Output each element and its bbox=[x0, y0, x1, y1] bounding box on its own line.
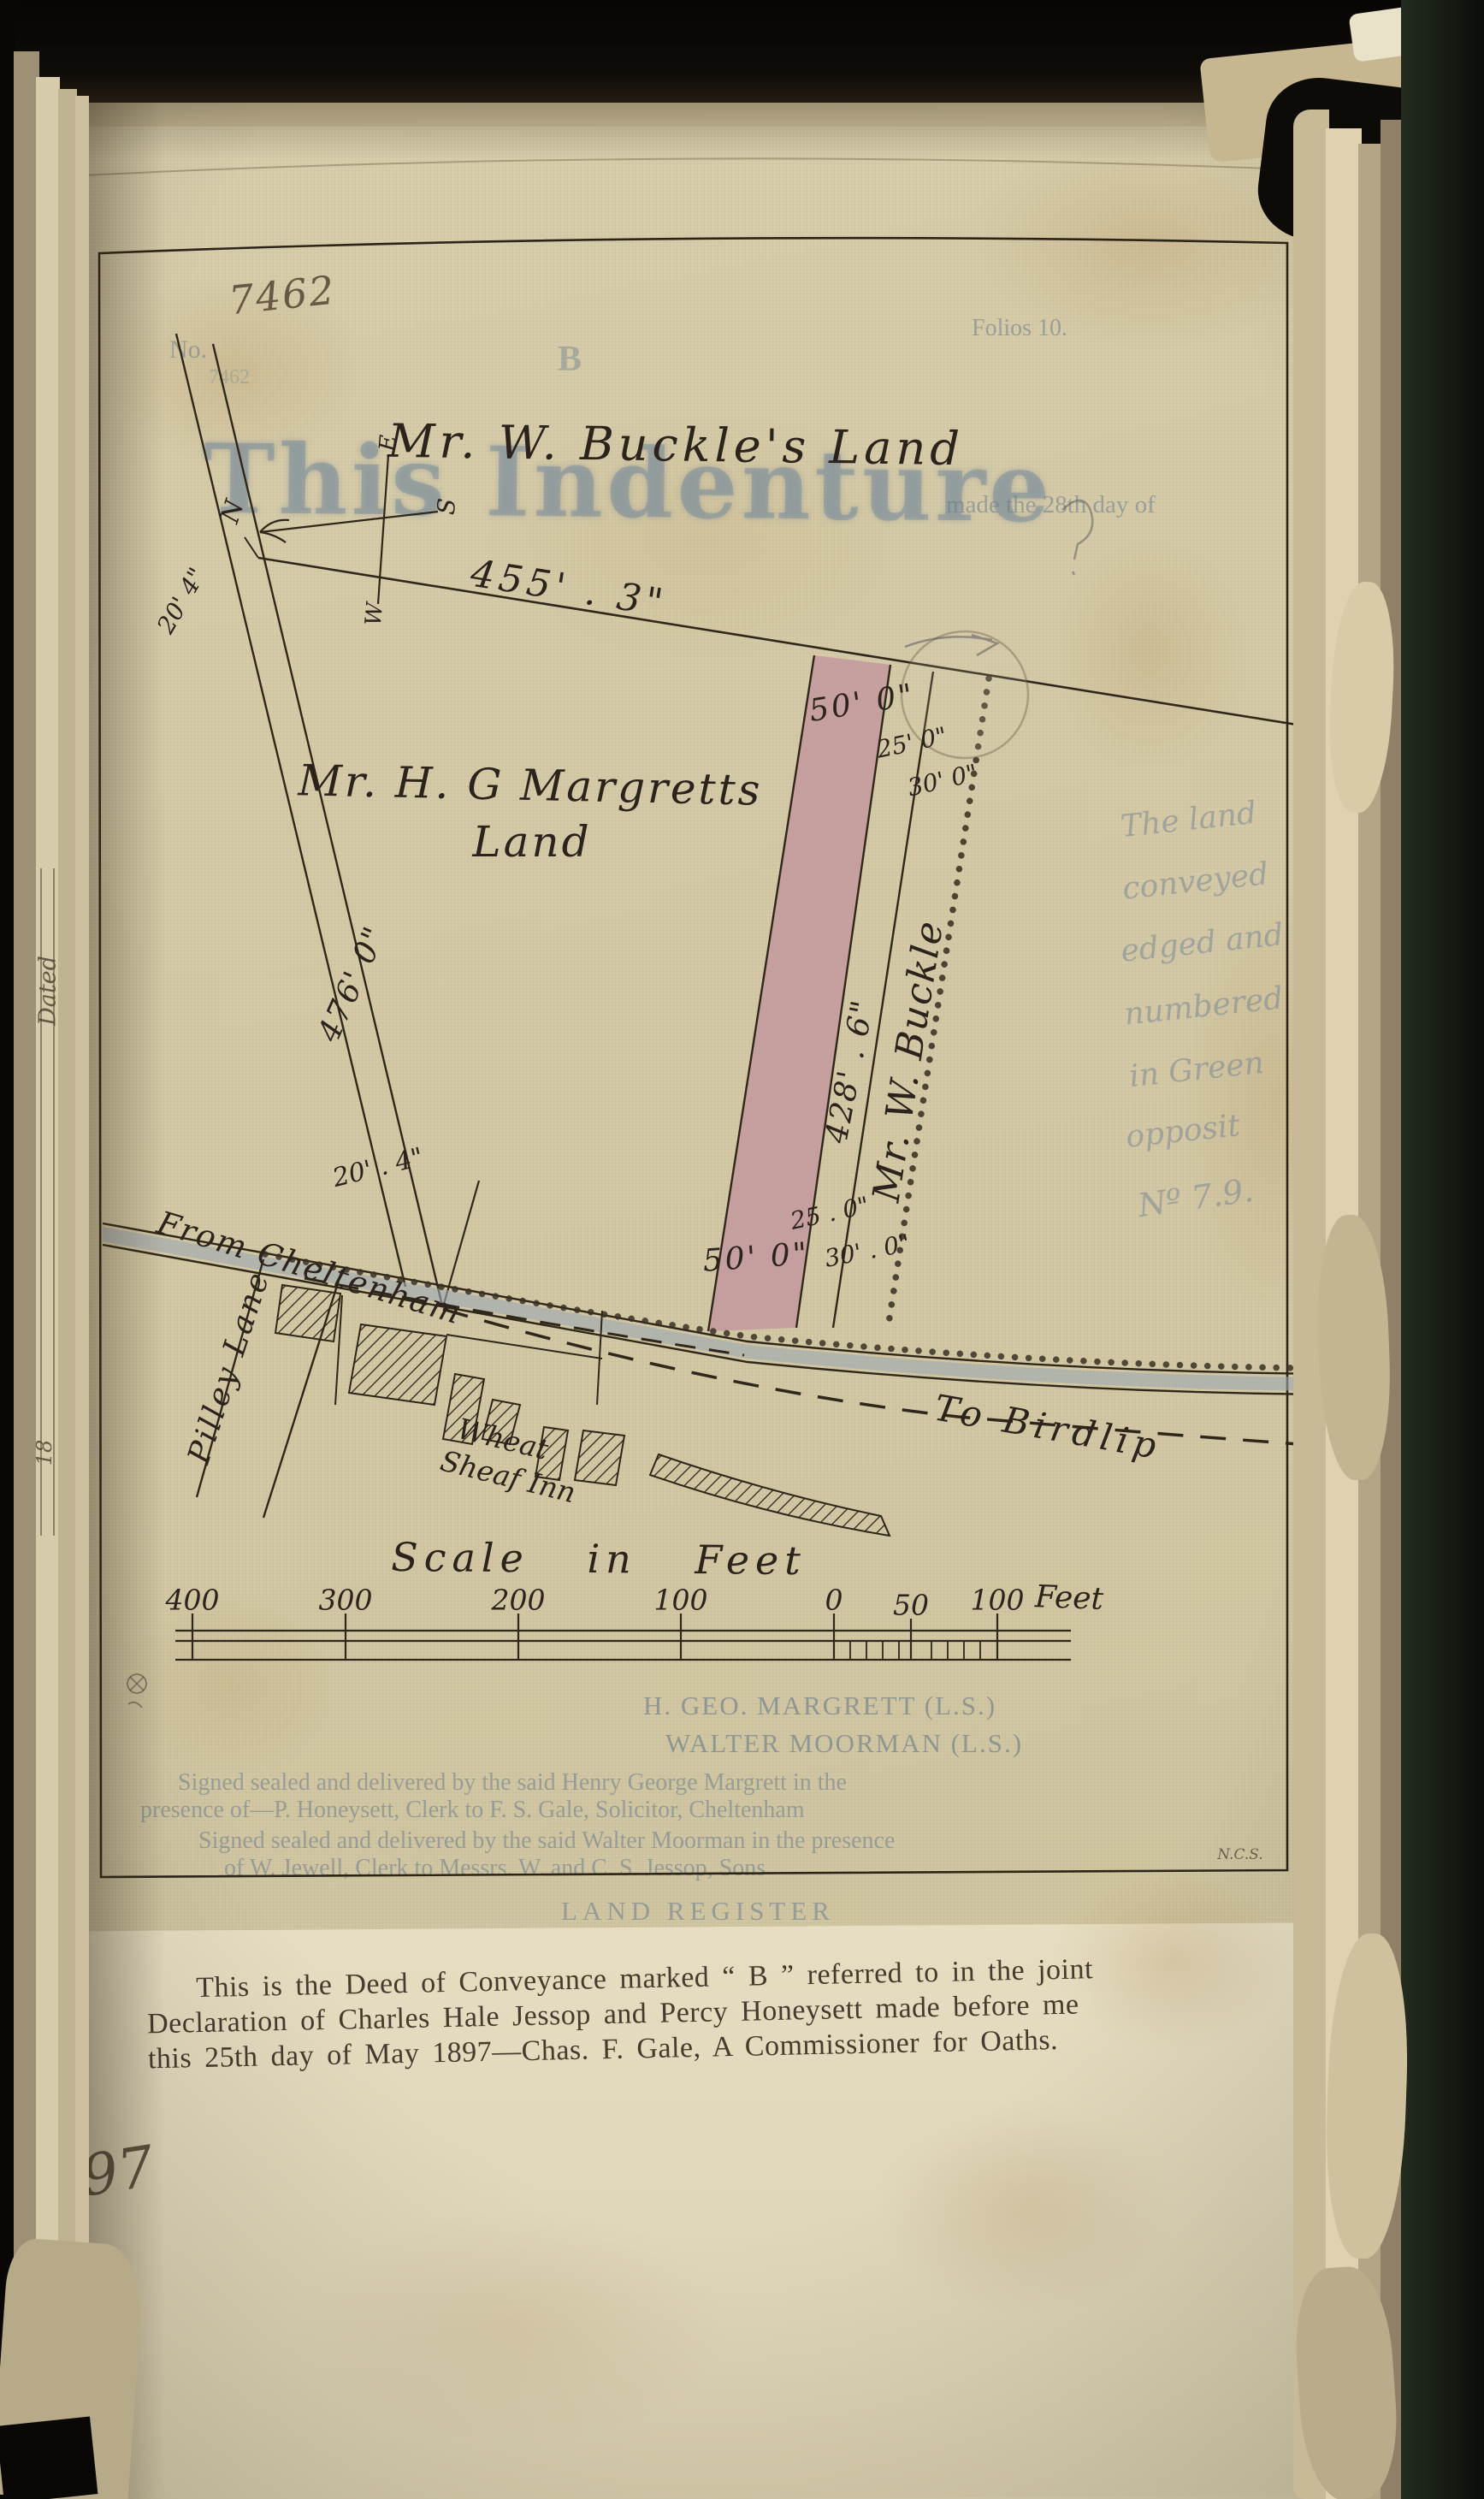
scale-label-400: 400 bbox=[166, 1584, 220, 1617]
compass-w: W bbox=[361, 601, 388, 626]
page-number-handwritten: 97 bbox=[78, 2133, 159, 2209]
scale-label-0: 0 bbox=[825, 1584, 843, 1617]
scale-label-50: 50 bbox=[893, 1589, 929, 1622]
corner-dark-bottom-left bbox=[0, 2417, 98, 2499]
spine-label-year: 18 bbox=[33, 1440, 56, 1466]
plan-title-buckles-land: Mr. W. Buckle's Land bbox=[387, 414, 964, 476]
scale-title: Scale in Feet bbox=[391, 1534, 807, 1584]
left-page-edge bbox=[58, 89, 77, 2499]
book-cover-right bbox=[1401, 0, 1484, 2499]
certificate-paragraph: This is the Deed of Conveyance marked “ … bbox=[146, 1951, 1157, 2077]
scale-label-100b: 100 bbox=[971, 1584, 1025, 1617]
owner-label-margretts-2: Land bbox=[472, 817, 591, 867]
scale-label-100: 100 bbox=[654, 1584, 708, 1617]
scale-unit-feet: Feet bbox=[1034, 1579, 1103, 1617]
compass-s: S bbox=[432, 497, 462, 516]
scale-label-200: 200 bbox=[492, 1584, 546, 1617]
scale-label-300: 300 bbox=[319, 1584, 373, 1617]
compass-e: E bbox=[375, 434, 402, 453]
owner-label-margretts: Mr. H. G Margretts bbox=[298, 755, 763, 814]
left-page-edge bbox=[75, 96, 89, 2499]
measurement-strip-bottom-50: 50' 0" bbox=[701, 1236, 810, 1279]
page-crease bbox=[67, 158, 1331, 176]
corner-mark: N.C.S. bbox=[1217, 1846, 1262, 1863]
spine-label-dated: Dated bbox=[35, 956, 62, 1026]
scanned-deed-page: No. 7462 B Folios 10. This Indenture mad… bbox=[0, 0, 1484, 2499]
